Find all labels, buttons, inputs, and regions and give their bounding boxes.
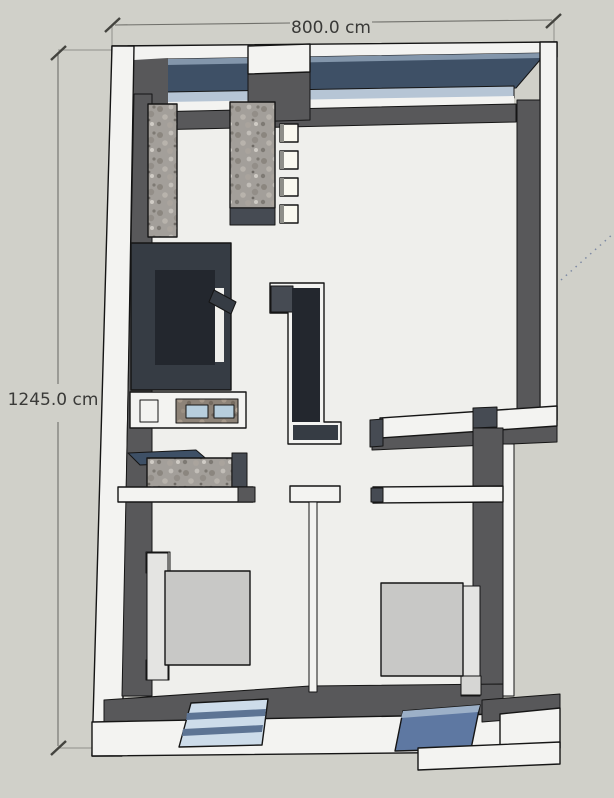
niche-wall-end-cap <box>370 419 383 447</box>
kitchen-island-side-face <box>230 208 275 225</box>
bed-mattress <box>165 571 250 665</box>
floor-plan-model[interactable] <box>92 42 560 770</box>
small-unit-side <box>280 124 284 142</box>
nightstand <box>461 676 481 695</box>
double-sink-vanity <box>130 392 246 428</box>
shower-interior <box>155 270 215 365</box>
small-unit-side <box>280 205 284 223</box>
bedroom-right-wall-end <box>371 488 383 502</box>
divider-wall-edge <box>309 502 317 692</box>
bedroom-right-wall-cap <box>373 486 503 503</box>
vanity-side-block <box>140 400 158 422</box>
bottom-window-left-glass <box>179 699 268 747</box>
right-wall-inner-face <box>517 100 540 414</box>
divider-wall-cap <box>290 486 340 502</box>
lower-counter-top <box>147 458 232 490</box>
bedroom-left-wall-cap <box>118 487 253 502</box>
kitchen-wall-counter <box>148 104 177 237</box>
niche-corner-pier <box>473 407 497 428</box>
small-unit-side <box>280 151 284 169</box>
bedroom-left-wall-end <box>238 487 255 502</box>
lower-right-wall-cap <box>503 444 514 696</box>
height-dimension-label: 1245.0 cm <box>8 390 99 410</box>
sink-right <box>214 405 234 418</box>
bed-left <box>146 552 250 680</box>
right-wall-cap <box>540 42 557 422</box>
center-wall-flag <box>271 286 293 312</box>
window-pier-cap <box>248 44 310 74</box>
center-wall-foot <box>293 425 338 440</box>
kitchen-island-counter <box>230 102 275 208</box>
shower-enclosure <box>131 243 236 390</box>
small-unit-side <box>280 178 284 196</box>
sketchup-viewport[interactable]: 800.0 cm 1245.0 cm <box>0 0 614 798</box>
lower-counter-end <box>232 453 247 490</box>
center-wall-body <box>292 288 320 422</box>
bed-mattress <box>381 583 463 676</box>
sink-left <box>186 405 208 418</box>
width-dimension-label: 800.0 cm <box>291 18 371 38</box>
